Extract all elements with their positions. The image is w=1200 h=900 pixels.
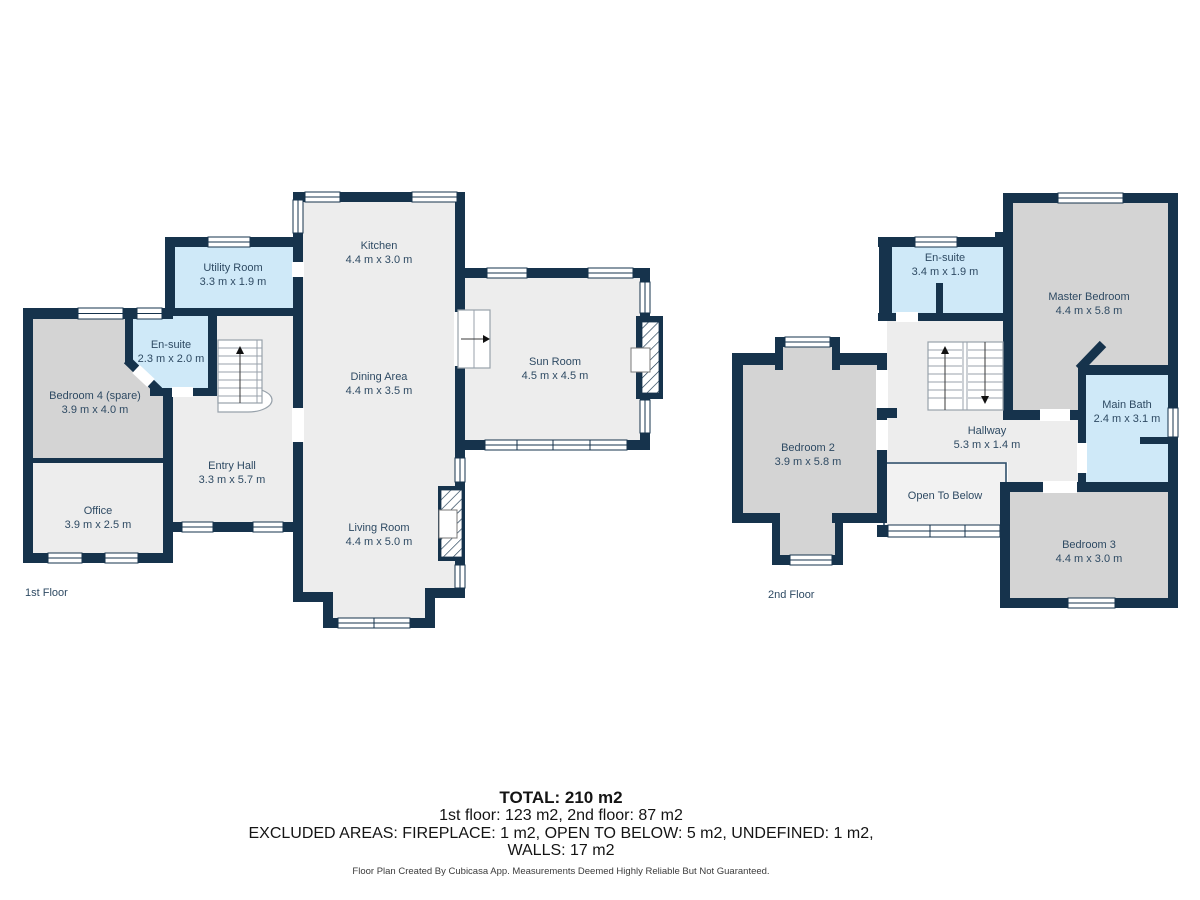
window (1168, 408, 1178, 437)
room-label-kitchen: Kitchen 4.4 m x 3.0 m (346, 239, 413, 267)
room-name: Kitchen (346, 239, 413, 253)
room-name: Living Room (346, 521, 413, 535)
room-label-hallway: Hallway 5.3 m x 1.4 m (954, 424, 1021, 452)
room-label-open-to-below: Open To Below (908, 489, 982, 503)
room-label-living-room: Living Room 4.4 m x 5.0 m (346, 521, 413, 549)
window (888, 525, 1000, 537)
window (412, 192, 457, 202)
room-dims: 4.4 m x 3.0 m (1056, 552, 1123, 566)
window (1058, 193, 1123, 203)
room-name: Main Bath (1094, 398, 1161, 412)
floor-plan-page: Kitchen 4.4 m x 3.0 m Dining Area 4.4 m … (0, 0, 1200, 900)
room-name: Entry Hall (199, 459, 266, 473)
window (455, 458, 465, 482)
room-dims: 3.9 m x 4.0 m (49, 403, 141, 417)
summary-walls: WALLS: 17 m2 (1, 842, 1121, 860)
room-name: Bedroom 4 (spare) (49, 389, 141, 403)
room-label-bedroom-2: Bedroom 2 3.9 m x 5.8 m (775, 441, 842, 469)
room-dims: 5.3 m x 1.4 m (954, 438, 1021, 452)
steps-icon (458, 310, 490, 368)
room-name: Utility Room (200, 261, 267, 275)
window (78, 308, 123, 319)
room-name: Hallway (954, 424, 1021, 438)
room-name: Dining Area (346, 370, 413, 384)
room-name: En-suite (138, 338, 205, 352)
window (915, 237, 957, 247)
window (485, 440, 627, 450)
window (640, 282, 650, 313)
room-label-entry-hall: Entry Hall 3.3 m x 5.7 m (199, 459, 266, 487)
room-name: Bedroom 3 (1056, 538, 1123, 552)
room-name: Bedroom 2 (775, 441, 842, 455)
room-label-bedroom-3: Bedroom 3 4.4 m x 3.0 m (1056, 538, 1123, 566)
window (790, 555, 832, 565)
room-name: Sun Room (522, 355, 589, 369)
floor-tag-2nd: 2nd Floor (768, 589, 814, 601)
window (455, 565, 465, 588)
summary-total: TOTAL: 210 m2 (1, 788, 1121, 807)
window (588, 268, 633, 278)
window (105, 553, 138, 563)
window (208, 237, 250, 247)
window (182, 522, 213, 532)
room-label-en-suite-2: En-suite 3.4 m x 1.9 m (912, 251, 979, 279)
floor-tag-1st: 1st Floor (25, 587, 68, 599)
room-label-bedroom-4: Bedroom 4 (spare) 3.9 m x 4.0 m (49, 389, 141, 417)
room-label-dining-area: Dining Area 4.4 m x 3.5 m (346, 370, 413, 398)
room-dims: 3.3 m x 5.7 m (199, 473, 266, 487)
room-dims: 2.4 m x 3.1 m (1094, 412, 1161, 426)
room-label-sun-room: Sun Room 4.5 m x 4.5 m (522, 355, 589, 383)
room-label-master-bedroom: Master Bedroom 4.4 m x 5.8 m (1048, 290, 1129, 318)
window (1068, 598, 1115, 608)
room-dims: 4.4 m x 3.0 m (346, 253, 413, 267)
room-dims: 3.9 m x 5.8 m (775, 455, 842, 469)
window (338, 618, 410, 628)
room-dims: 3.9 m x 2.5 m (65, 518, 132, 532)
fireplace-icon (438, 486, 465, 561)
room-dims: 3.4 m x 1.9 m (912, 265, 979, 279)
credit-line: Floor Plan Created By Cubicasa App. Meas… (352, 866, 769, 877)
window (48, 553, 82, 563)
room-dims: 4.4 m x 3.5 m (346, 384, 413, 398)
room-label-utility-room: Utility Room 3.3 m x 1.9 m (200, 261, 267, 289)
room-label-en-suite-1: En-suite 2.3 m x 2.0 m (138, 338, 205, 366)
room-name: Open To Below (908, 489, 982, 503)
window (640, 400, 650, 433)
room-dims: 2.3 m x 2.0 m (138, 352, 205, 366)
room-dims: 4.5 m x 4.5 m (522, 369, 589, 383)
room-label-main-bath: Main Bath 2.4 m x 3.1 m (1094, 398, 1161, 426)
room-dims: 4.4 m x 5.8 m (1048, 304, 1129, 318)
stairs-icon (928, 342, 1003, 410)
summary-floors: 1st floor: 123 m2, 2nd floor: 87 m2 (1, 807, 1121, 825)
window (253, 522, 283, 532)
room-dims: 3.3 m x 1.9 m (200, 275, 267, 289)
window (137, 308, 162, 319)
window (785, 337, 830, 347)
room-dims: 4.4 m x 5.0 m (346, 535, 413, 549)
room-name: Master Bedroom (1048, 290, 1129, 304)
window (305, 192, 340, 202)
summary-block: TOTAL: 210 m2 1st floor: 123 m2, 2nd flo… (1, 788, 1121, 860)
window (487, 268, 527, 278)
room-name: En-suite (912, 251, 979, 265)
room-name: Office (65, 504, 132, 518)
window (293, 200, 303, 233)
room-label-office: Office 3.9 m x 2.5 m (65, 504, 132, 532)
summary-excluded: EXCLUDED AREAS: FIREPLACE: 1 m2, OPEN TO… (1, 825, 1121, 843)
